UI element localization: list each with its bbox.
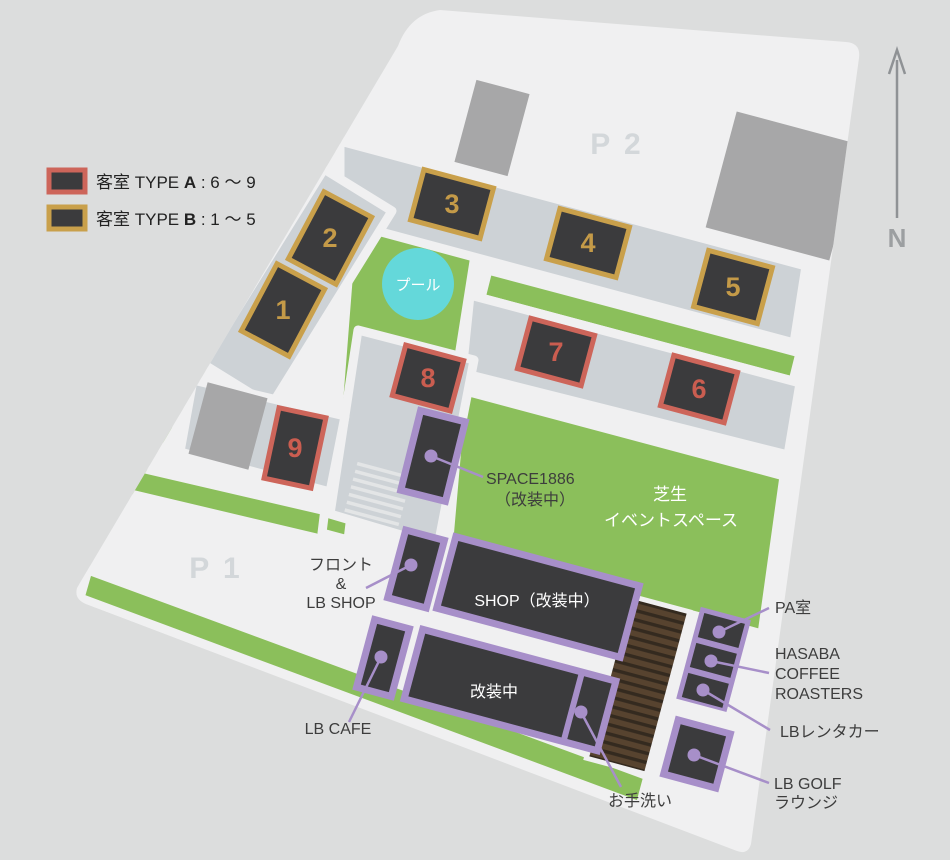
rentacar-dot [697, 684, 710, 697]
legend-type-b-swatch [49, 207, 85, 229]
compass: N [888, 50, 907, 253]
lawn-event-label-1: 芝生 [653, 485, 687, 504]
shop-building-label: SHOP（改装中） [474, 592, 599, 610]
golf-label-2: ラウンジ [774, 794, 838, 812]
front-label-2: & [336, 576, 347, 593]
front-dot [405, 559, 418, 572]
front-label-1: フロント [309, 557, 373, 574]
cafe-label: LB CAFE [305, 721, 372, 738]
site-map: P 2 P 1 プール 1 2 3 4 5 6 7 8 9 SHOP（改装中 [0, 0, 950, 860]
space1886-label: SPACE1886 [486, 471, 575, 488]
parking-p1-label: P 1 [189, 552, 243, 585]
golf-dot [688, 749, 701, 762]
hasaba-label-3: ROASTERS [775, 686, 863, 703]
restroom-dot [575, 706, 588, 719]
legend-type-b-label: 客室 TYPE B : 1 ～ 5 [96, 210, 256, 229]
pool-label: プール [395, 277, 440, 294]
room-3-number: 3 [444, 189, 459, 219]
room-1-number: 1 [275, 295, 290, 325]
legend: 客室 TYPE A : 6 ～ 9 客室 TYPE B : 1 ～ 5 [49, 170, 256, 229]
room-8-number: 8 [420, 363, 435, 393]
north-label: N [888, 223, 907, 253]
room-2-number: 2 [322, 223, 337, 253]
room-9-number: 9 [287, 433, 302, 463]
room-7-number: 7 [548, 337, 563, 367]
restroom-label: お手洗い [608, 792, 672, 810]
golf-label-1: LB GOLF [774, 776, 842, 793]
lawn-event-label-2: イベントスペース [604, 511, 738, 530]
legend-type-a-swatch [49, 170, 85, 192]
pa-label: PA室 [775, 599, 811, 617]
cafe-dot [375, 651, 388, 664]
parking-p2-label: P 2 [590, 128, 644, 161]
rentacar-label: LBレンタカー [780, 723, 880, 741]
space1886-note: （改装中） [495, 491, 575, 509]
legend-type-a-label: 客室 TYPE A : 6 ～ 9 [96, 173, 256, 192]
room-5-number: 5 [725, 272, 740, 302]
renovation-building-label: 改装中 [470, 683, 518, 701]
room-4-number: 4 [580, 228, 595, 258]
hasaba-label-1: HASABA [775, 646, 840, 663]
space1886-dot [425, 450, 438, 463]
hasaba-label-2: COFFEE [775, 666, 840, 683]
hasaba-dot [705, 655, 718, 668]
site-map-canvas: P 2 P 1 プール 1 2 3 4 5 6 7 8 9 SHOP（改装中 [0, 0, 950, 860]
front-label-3: LB SHOP [306, 595, 375, 612]
room-6-number: 6 [691, 374, 706, 404]
pa-dot [713, 626, 726, 639]
